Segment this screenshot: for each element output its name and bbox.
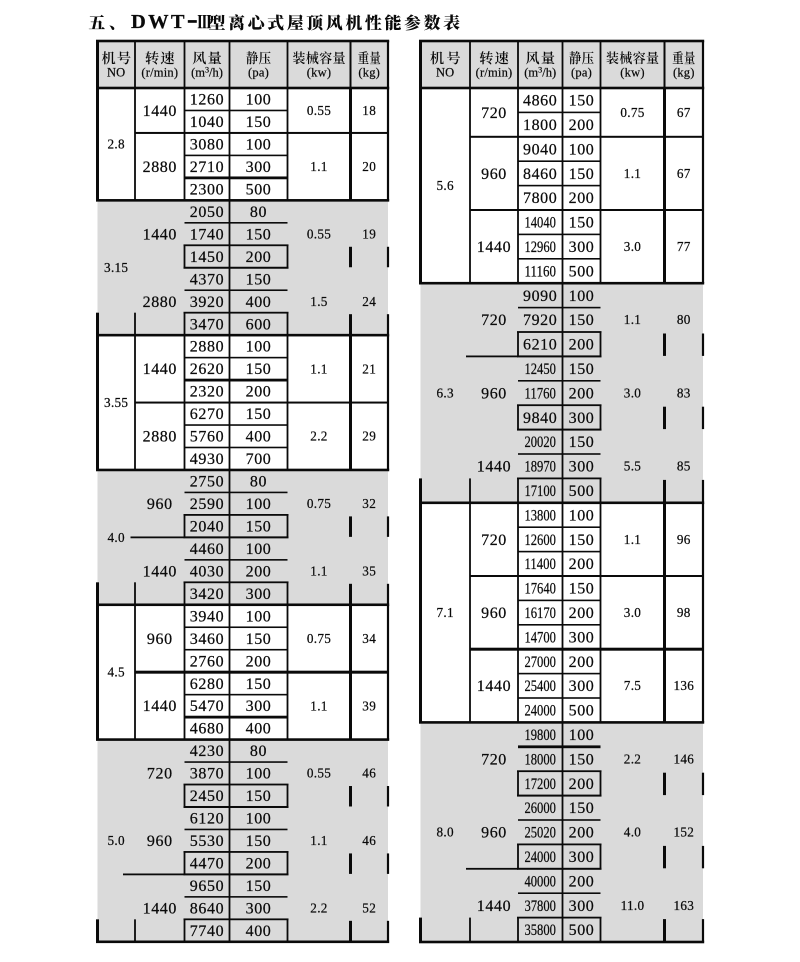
svg-text:12600: 12600 [524, 532, 556, 549]
svg-text:3920: 3920 [190, 294, 224, 311]
svg-text:1440: 1440 [143, 361, 177, 378]
svg-text:18: 18 [362, 103, 376, 118]
svg-text:720: 720 [147, 766, 173, 783]
svg-text:27000: 27000 [524, 654, 556, 671]
svg-text:100: 100 [569, 141, 595, 158]
svg-text:4.0: 4.0 [108, 530, 125, 545]
svg-text:96: 96 [677, 532, 691, 547]
svg-text:1.1: 1.1 [310, 833, 327, 848]
svg-text:300: 300 [246, 901, 272, 918]
svg-text:2050: 2050 [190, 204, 224, 221]
svg-text:100: 100 [246, 541, 272, 558]
svg-text:2300: 2300 [190, 182, 224, 199]
svg-text:(kg): (kg) [358, 65, 380, 79]
svg-text:5.0: 5.0 [108, 833, 125, 848]
svg-text:100: 100 [569, 727, 595, 744]
svg-text:1440: 1440 [477, 678, 511, 695]
svg-text:150: 150 [246, 271, 272, 288]
svg-text:11400: 11400 [524, 556, 556, 573]
svg-text:150: 150 [246, 519, 272, 536]
svg-text:80: 80 [250, 474, 267, 491]
svg-text:150: 150 [246, 226, 272, 243]
svg-text:1.1: 1.1 [624, 166, 641, 181]
svg-text:16170: 16170 [524, 605, 556, 622]
svg-text:(r/min): (r/min) [141, 65, 178, 79]
svg-text:150: 150 [246, 788, 272, 805]
svg-text:150: 150 [569, 361, 595, 378]
svg-text:1440: 1440 [143, 698, 177, 715]
svg-text:146: 146 [673, 751, 694, 766]
svg-text:20: 20 [362, 159, 376, 174]
svg-text:600: 600 [246, 316, 272, 333]
svg-text:3870: 3870 [190, 766, 224, 783]
svg-text:150: 150 [246, 676, 272, 693]
svg-text:500: 500 [246, 182, 272, 199]
svg-text:20020: 20020 [524, 434, 556, 451]
svg-text:18000: 18000 [524, 751, 556, 768]
svg-text:4230: 4230 [190, 743, 224, 760]
svg-text:3.0: 3.0 [624, 385, 641, 400]
svg-text:9840: 9840 [523, 410, 557, 427]
svg-text:46: 46 [362, 766, 376, 781]
svg-text:150: 150 [246, 361, 272, 378]
svg-text:720: 720 [481, 105, 507, 122]
svg-text:300: 300 [246, 159, 272, 176]
svg-text:2760: 2760 [190, 653, 224, 670]
svg-text:150: 150 [569, 215, 595, 232]
svg-text:100: 100 [569, 507, 595, 524]
svg-text:1040: 1040 [190, 114, 224, 131]
svg-text:2880: 2880 [190, 339, 224, 356]
svg-text:DWT: DWT [131, 11, 187, 33]
svg-text:1450: 1450 [190, 249, 224, 266]
svg-text:4370: 4370 [190, 271, 224, 288]
svg-text:24000: 24000 [524, 703, 556, 720]
svg-text:150: 150 [569, 434, 595, 451]
svg-text:720: 720 [481, 532, 507, 549]
svg-text:46: 46 [362, 833, 376, 848]
svg-text:(kw): (kw) [620, 65, 644, 79]
svg-text:400: 400 [246, 294, 272, 311]
svg-text:960: 960 [147, 833, 173, 850]
svg-text:300: 300 [569, 410, 595, 427]
svg-text:4680: 4680 [190, 721, 224, 738]
svg-text:14040: 14040 [524, 215, 556, 232]
svg-text:35: 35 [362, 564, 376, 579]
svg-text:300: 300 [569, 678, 595, 695]
svg-text:400: 400 [246, 923, 272, 940]
svg-text:(kg): (kg) [673, 65, 695, 79]
svg-text:1440: 1440 [477, 898, 511, 915]
svg-text:3080: 3080 [190, 137, 224, 154]
svg-text:200: 200 [569, 190, 595, 207]
svg-text:150: 150 [569, 751, 595, 768]
svg-text:300: 300 [246, 698, 272, 715]
svg-text:67: 67 [677, 166, 691, 181]
svg-text:37800: 37800 [524, 898, 556, 915]
svg-text:25020: 25020 [524, 825, 556, 842]
svg-text:9090: 9090 [523, 288, 557, 305]
svg-text:17200: 17200 [524, 776, 556, 793]
svg-text:7800: 7800 [523, 190, 557, 207]
svg-text:200: 200 [569, 117, 595, 134]
svg-text:18970: 18970 [524, 459, 556, 476]
svg-text:3940: 3940 [190, 608, 224, 625]
svg-text:25400: 25400 [524, 678, 556, 695]
svg-text:960: 960 [481, 166, 507, 183]
svg-text:150: 150 [569, 581, 595, 598]
svg-text:34: 34 [362, 631, 376, 646]
svg-text:4460: 4460 [190, 541, 224, 558]
svg-text:19800: 19800 [524, 727, 556, 744]
svg-text:1.1: 1.1 [624, 532, 641, 547]
svg-text:3420: 3420 [190, 586, 224, 603]
svg-text:2320: 2320 [190, 384, 224, 401]
svg-text:0.55: 0.55 [307, 766, 331, 781]
svg-text:98: 98 [677, 605, 691, 620]
svg-text:300: 300 [569, 239, 595, 256]
svg-text:163: 163 [673, 898, 694, 913]
svg-text:8.0: 8.0 [437, 825, 454, 840]
svg-text:150: 150 [246, 631, 272, 648]
svg-text:32: 32 [362, 496, 376, 511]
svg-text:1440: 1440 [477, 239, 511, 256]
svg-text:85: 85 [677, 459, 691, 474]
svg-text:1440: 1440 [143, 226, 177, 243]
svg-text:100: 100 [246, 766, 272, 783]
svg-text:200: 200 [246, 563, 272, 580]
svg-text:0.55: 0.55 [307, 103, 331, 118]
svg-text:24: 24 [362, 294, 376, 309]
svg-text:3.0: 3.0 [624, 605, 641, 620]
svg-text:200: 200 [246, 653, 272, 670]
svg-text:960: 960 [147, 496, 173, 513]
svg-text:2450: 2450 [190, 788, 224, 805]
svg-text:200: 200 [569, 337, 595, 354]
svg-text:80: 80 [250, 204, 267, 221]
svg-text:200: 200 [569, 825, 595, 842]
svg-text:500: 500 [569, 922, 595, 939]
svg-text:2750: 2750 [190, 474, 224, 491]
svg-text:19: 19 [362, 227, 376, 242]
svg-text:150: 150 [246, 833, 272, 850]
svg-text:(pa): (pa) [571, 65, 592, 79]
svg-text:0.55: 0.55 [307, 227, 331, 242]
svg-text:2.2: 2.2 [624, 751, 641, 766]
svg-text:39: 39 [362, 698, 376, 713]
svg-text:200: 200 [569, 556, 595, 573]
svg-text:100: 100 [246, 137, 272, 154]
svg-text:100: 100 [246, 608, 272, 625]
svg-text:11160: 11160 [524, 263, 556, 280]
svg-text:0.75: 0.75 [307, 496, 331, 511]
svg-text:17640: 17640 [524, 581, 556, 598]
svg-text:11.0: 11.0 [621, 898, 645, 913]
svg-text:2040: 2040 [190, 519, 224, 536]
svg-text:300: 300 [569, 629, 595, 646]
svg-text:17100: 17100 [524, 483, 556, 500]
svg-text:4.0: 4.0 [624, 825, 641, 840]
svg-text:3470: 3470 [190, 316, 224, 333]
svg-text:9040: 9040 [523, 141, 557, 158]
svg-text:960: 960 [481, 825, 507, 842]
svg-text:5.5: 5.5 [624, 459, 641, 474]
svg-text:5530: 5530 [190, 833, 224, 850]
svg-text:2.2: 2.2 [310, 901, 327, 916]
svg-text:2880: 2880 [143, 159, 177, 176]
svg-text:150: 150 [569, 312, 595, 329]
svg-text:300: 300 [569, 459, 595, 476]
svg-text:500: 500 [569, 263, 595, 280]
svg-text:40000: 40000 [524, 873, 556, 890]
svg-text:1.1: 1.1 [310, 564, 327, 579]
svg-text:150: 150 [569, 800, 595, 817]
svg-text:0.75: 0.75 [620, 105, 644, 120]
svg-text:(kw): (kw) [307, 65, 331, 79]
svg-text:4.5: 4.5 [108, 665, 125, 680]
svg-text:21: 21 [362, 361, 376, 376]
svg-text:200: 200 [569, 873, 595, 890]
svg-text:7.5: 7.5 [624, 678, 641, 693]
svg-text:100: 100 [569, 288, 595, 305]
svg-text:720: 720 [481, 751, 507, 768]
svg-text:2620: 2620 [190, 361, 224, 378]
svg-text:2.2: 2.2 [310, 429, 327, 444]
svg-text:1.1: 1.1 [310, 698, 327, 713]
svg-text:6.3: 6.3 [437, 385, 454, 400]
svg-text:0.75: 0.75 [307, 631, 331, 646]
svg-text:200: 200 [246, 384, 272, 401]
svg-text:1.1: 1.1 [624, 312, 641, 327]
svg-text:150: 150 [569, 166, 595, 183]
svg-text:12960: 12960 [524, 239, 556, 256]
svg-text:6280: 6280 [190, 676, 224, 693]
svg-text:500: 500 [569, 483, 595, 500]
svg-text:1.1: 1.1 [310, 159, 327, 174]
svg-text:6270: 6270 [190, 406, 224, 423]
svg-text:2710: 2710 [190, 159, 224, 176]
svg-text:100: 100 [246, 811, 272, 828]
svg-text:200: 200 [246, 249, 272, 266]
svg-text:150: 150 [569, 532, 595, 549]
svg-text:1.5: 1.5 [310, 294, 327, 309]
svg-text:5470: 5470 [190, 698, 224, 715]
svg-text:2590: 2590 [190, 496, 224, 513]
svg-text:100: 100 [246, 339, 272, 356]
svg-text:13800: 13800 [524, 507, 556, 524]
svg-text:(pa): (pa) [248, 65, 269, 79]
svg-text:12450: 12450 [524, 361, 556, 378]
svg-text:29: 29 [362, 429, 376, 444]
svg-text:960: 960 [481, 605, 507, 622]
svg-text:400: 400 [246, 721, 272, 738]
svg-text:4930: 4930 [190, 451, 224, 468]
svg-text:6210: 6210 [523, 337, 557, 354]
svg-text:7.1: 7.1 [437, 605, 454, 620]
svg-text:1800: 1800 [523, 117, 557, 134]
svg-text:24000: 24000 [524, 849, 556, 866]
svg-text:3.0: 3.0 [624, 239, 641, 254]
svg-text:NO: NO [107, 65, 125, 79]
svg-text:136: 136 [673, 678, 694, 693]
svg-text:720: 720 [481, 312, 507, 329]
svg-text:7920: 7920 [523, 312, 557, 329]
svg-text:150: 150 [246, 878, 272, 895]
svg-text:3.55: 3.55 [104, 395, 128, 410]
svg-text:77: 77 [677, 239, 691, 254]
svg-text:960: 960 [481, 385, 507, 402]
svg-text:4470: 4470 [190, 856, 224, 873]
svg-text:3.15: 3.15 [104, 260, 128, 275]
svg-text:83: 83 [677, 385, 691, 400]
svg-text:7740: 7740 [190, 923, 224, 940]
svg-text:700: 700 [246, 451, 272, 468]
svg-text:5760: 5760 [190, 429, 224, 446]
svg-text:152: 152 [673, 825, 694, 840]
svg-text:52: 52 [362, 901, 376, 916]
svg-text:1440: 1440 [143, 563, 177, 580]
svg-text:1260: 1260 [190, 92, 224, 109]
svg-text:80: 80 [250, 743, 267, 760]
svg-text:150: 150 [246, 114, 272, 131]
svg-text:4860: 4860 [523, 93, 557, 110]
svg-text:500: 500 [569, 703, 595, 720]
svg-text:100: 100 [246, 92, 272, 109]
svg-text:300: 300 [246, 586, 272, 603]
svg-text:2.8: 2.8 [108, 137, 125, 152]
svg-text:200: 200 [569, 776, 595, 793]
svg-text:1740: 1740 [190, 226, 224, 243]
svg-text:6120: 6120 [190, 811, 224, 828]
svg-text:200: 200 [569, 654, 595, 671]
svg-text:8460: 8460 [523, 166, 557, 183]
svg-text:5.6: 5.6 [437, 178, 454, 193]
svg-text:300: 300 [569, 849, 595, 866]
svg-text:2880: 2880 [143, 294, 177, 311]
svg-text:2880: 2880 [143, 429, 177, 446]
svg-text:200: 200 [569, 605, 595, 622]
svg-text:(r/min): (r/min) [476, 65, 513, 79]
svg-text:200: 200 [246, 856, 272, 873]
svg-text:960: 960 [147, 631, 173, 648]
svg-text:35800: 35800 [524, 922, 556, 939]
svg-text:400: 400 [246, 429, 272, 446]
svg-text:14700: 14700 [524, 629, 556, 646]
svg-text:4030: 4030 [190, 563, 224, 580]
svg-text:NO: NO [436, 65, 454, 79]
svg-text:8640: 8640 [190, 901, 224, 918]
svg-text:1440: 1440 [143, 103, 177, 120]
svg-text:9650: 9650 [190, 878, 224, 895]
svg-text:3460: 3460 [190, 631, 224, 648]
svg-text:1440: 1440 [477, 459, 511, 476]
svg-text:67: 67 [677, 105, 691, 120]
svg-text:1.1: 1.1 [310, 361, 327, 376]
svg-text:200: 200 [569, 385, 595, 402]
svg-text:11760: 11760 [524, 385, 556, 402]
svg-text:300: 300 [569, 898, 595, 915]
svg-text:80: 80 [677, 312, 691, 327]
svg-text:1440: 1440 [143, 901, 177, 918]
svg-text:150: 150 [569, 93, 595, 110]
svg-text:26000: 26000 [524, 800, 556, 817]
svg-text:100: 100 [246, 496, 272, 513]
svg-text:150: 150 [246, 406, 272, 423]
